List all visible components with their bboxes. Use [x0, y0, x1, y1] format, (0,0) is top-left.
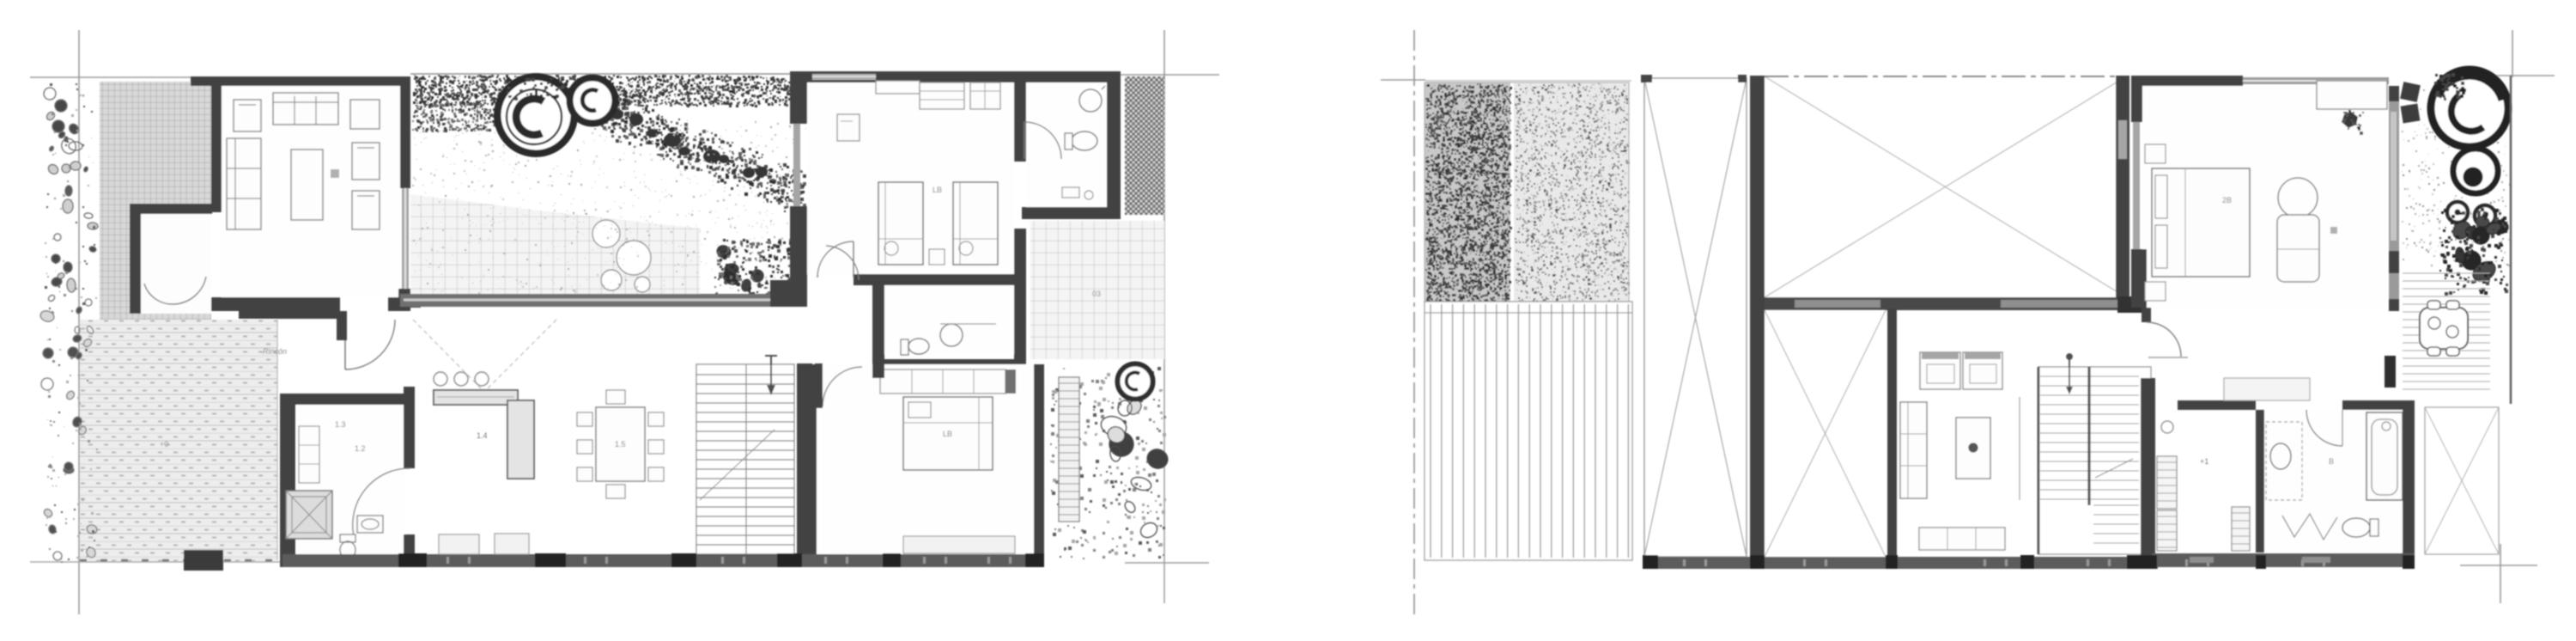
- svg-text:LB: LB: [943, 430, 952, 438]
- svg-text:+1: +1: [2200, 457, 2208, 466]
- svg-text:1.5: 1.5: [615, 440, 626, 449]
- svg-text:+0: +0: [160, 440, 168, 449]
- svg-text:1.2: 1.2: [355, 444, 366, 453]
- svg-text:B: B: [2329, 457, 2334, 466]
- svg-text:03: 03: [1092, 290, 1101, 298]
- svg-text:1.4: 1.4: [477, 431, 488, 440]
- svg-text:2B: 2B: [2222, 196, 2232, 205]
- svg-text:Rincón: Rincón: [263, 347, 287, 356]
- svg-text:1.3: 1.3: [335, 420, 346, 429]
- svg-text:LB: LB: [933, 186, 942, 194]
